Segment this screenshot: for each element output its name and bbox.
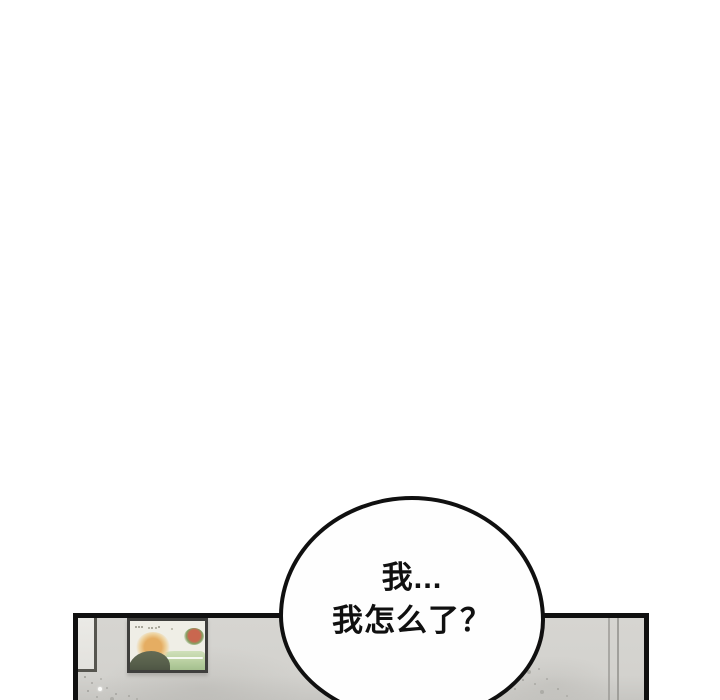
- framed-drawing: [130, 621, 205, 670]
- whiteboard-partial: [78, 618, 97, 672]
- wall-white-dot: [98, 687, 102, 691]
- drawing-scribbles: [135, 626, 137, 628]
- drawing-red-bush: [184, 628, 204, 645]
- speech-bubble: 我... 我怎么了？: [279, 496, 545, 700]
- comic-page: 我... 我怎么了？: [0, 0, 720, 700]
- bubble-line-2: 我怎么了？: [332, 599, 492, 642]
- speech-bubble-text: 我... 我怎么了？: [332, 556, 492, 642]
- wall-corner-line-right: [617, 618, 619, 700]
- wall-corner-line-left: [608, 618, 610, 700]
- picture-frame: [127, 618, 208, 673]
- wall-speckles-left: [84, 676, 86, 678]
- bubble-line-1: 我...: [332, 556, 492, 599]
